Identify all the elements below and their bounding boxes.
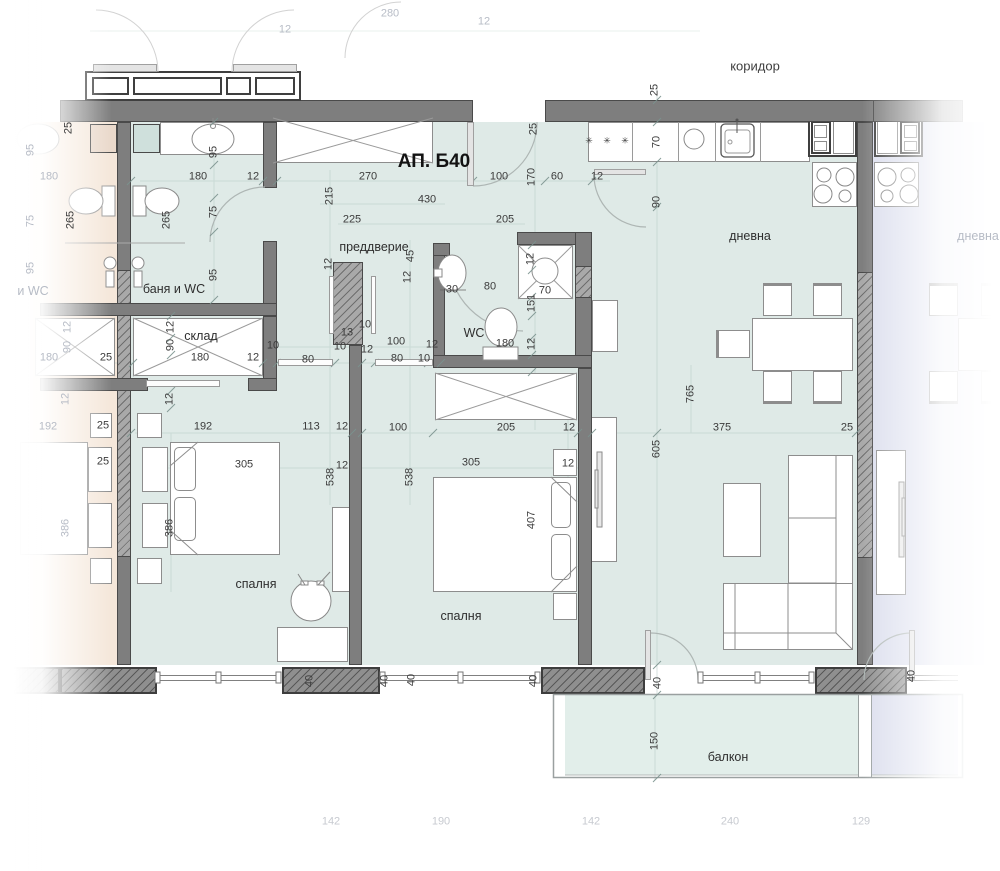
dimension-label: 13 [341, 328, 353, 339]
living-door-arc [594, 175, 646, 227]
dimension-label: 100 [490, 172, 508, 183]
shower-fixture-icon [104, 257, 144, 287]
neighbor-tv-icon [899, 482, 905, 557]
corridor-door-arc [96, 10, 158, 72]
room-label: склад [184, 330, 217, 343]
dimension-label: 192 [39, 422, 57, 433]
dimension-label: 40 [407, 674, 418, 686]
corridor-door-arc [232, 10, 294, 72]
dimension-label: 180 [191, 353, 209, 364]
room-label: дневна [729, 230, 771, 243]
dimension-label: 12 [426, 340, 438, 351]
dimension-label: 12 [165, 393, 176, 405]
dimension-label: 10 [418, 354, 430, 365]
stove-burners-icon [814, 168, 854, 203]
dimension-label: 90 [652, 196, 663, 208]
dimension-label: 265 [162, 211, 173, 229]
dimension-label: 270 [359, 172, 377, 183]
dimension-label: 205 [496, 215, 514, 226]
neighbor-stove-burners-icon [878, 168, 918, 203]
balcony-door-leaf [645, 630, 651, 680]
dimension-label: 25 [650, 84, 661, 96]
room-label: коридор [730, 60, 780, 73]
dimension-label: 12 [279, 25, 291, 36]
tv-icon [595, 452, 602, 527]
dimension-label: 70 [539, 286, 551, 297]
balcony-door-arc [651, 633, 698, 680]
dimension-label: 90 [63, 341, 74, 353]
room-label: спалня [441, 610, 482, 623]
dimension-label: 142 [582, 817, 600, 828]
dimension-label: 12 [61, 393, 72, 405]
plan-linework [0, 0, 1000, 871]
dimension-label: 95 [209, 146, 220, 158]
room-label: дневна [957, 230, 999, 243]
appliance-symbol: ✳ ✳ ✳ [585, 137, 633, 146]
floor-plan-canvas: АП. Б40 коридорпреддвериебаня и WCскладW… [0, 0, 1000, 871]
plant-icon [291, 572, 331, 621]
dimension-label: 40 [653, 677, 664, 689]
dimension-label: 113 [302, 422, 320, 433]
dimension-label: 80 [391, 354, 403, 365]
dimension-label: 386 [61, 519, 72, 537]
dimension-label: 95 [209, 269, 220, 281]
dimension-label: 190 [432, 817, 450, 828]
dimension-label: 150 [650, 732, 661, 750]
dimension-label: 142 [322, 817, 340, 828]
dimension-label: 305 [235, 460, 253, 471]
pocket-door-panel [371, 276, 376, 334]
dimension-label: 25 [64, 122, 75, 134]
dimension-label: 12 [63, 321, 74, 333]
neighbor-balcony-door-arc [864, 633, 911, 680]
dimension-label: 225 [343, 215, 361, 226]
dimension-label: 12 [247, 353, 259, 364]
dimension-label: 407 [527, 511, 538, 529]
balcony-railing [554, 695, 963, 778]
dimension-label: 538 [405, 468, 416, 486]
dimension-label: 25 [529, 123, 540, 135]
dimension-label: 12 [591, 172, 603, 183]
dimension-label: 70 [652, 136, 663, 148]
dimension-label: 192 [194, 422, 212, 433]
dimension-label: 80 [484, 282, 496, 293]
dimension-label: 75 [209, 206, 220, 218]
room-label: и WC [17, 285, 48, 298]
dimension-label: 40 [380, 675, 391, 687]
dimension-label: 12 [527, 338, 538, 350]
dimension-label: 12 [403, 271, 414, 283]
sofa-lines [724, 456, 852, 649]
dimension-label: 538 [326, 468, 337, 486]
dimension-label: 205 [497, 423, 515, 434]
neighbor-sink-icon [17, 124, 59, 154]
dimension-label: 80 [302, 355, 314, 366]
room-label: WC [464, 327, 485, 340]
dimension-label: 25 [841, 423, 853, 434]
dimension-ticks [127, 96, 860, 782]
dimension-label: 12 [336, 422, 348, 433]
dimension-label: 40 [529, 675, 540, 687]
wc-toilet-icon [483, 308, 518, 360]
dimension-label: 12 [526, 253, 537, 265]
apartment-title: АП. Б40 [398, 151, 470, 173]
dimension-label: 12 [247, 172, 259, 183]
dimension-label: 765 [686, 385, 697, 403]
dimension-label: 45 [406, 250, 417, 262]
dimension-label: 100 [387, 337, 405, 348]
dimension-label: 25 [97, 457, 109, 468]
dimension-label: 605 [652, 440, 663, 458]
dimension-label: 100 [389, 423, 407, 434]
dimension-label: 280 [381, 9, 399, 20]
dimension-label: 25 [100, 353, 112, 364]
room-label: балкон [708, 751, 749, 764]
dimension-label: 75 [26, 215, 37, 227]
bed-fold-marks [170, 442, 577, 592]
dimension-label: 180 [40, 172, 58, 183]
kitchen-sink-icon [721, 119, 754, 158]
dimension-label: 40 [305, 675, 316, 687]
room-label: баня и WC [143, 283, 205, 296]
dimension-label: 95 [26, 144, 37, 156]
dimension-label: 30 [446, 285, 458, 296]
dimension-label: 180 [40, 353, 58, 364]
dimension-label: 12 [361, 345, 373, 356]
dimension-label: 10 [359, 320, 371, 331]
dimension-label: 151 [527, 294, 538, 312]
kitchen-hob-icon [684, 129, 704, 149]
storage-sliding-door [146, 380, 220, 387]
dimension-label: 10 [334, 342, 346, 353]
dimension-label: 375 [713, 423, 731, 434]
dimension-label: 180 [496, 339, 514, 350]
dimension-label: 12 [166, 321, 177, 333]
dimension-label: 129 [852, 817, 870, 828]
dimension-label: 90 [166, 339, 177, 351]
dimension-label: 240 [721, 817, 739, 828]
dimension-label: 215 [325, 187, 336, 205]
dimension-label: 305 [462, 458, 480, 469]
dimension-label: 25 [97, 421, 109, 432]
room-label: преддверие [339, 241, 408, 254]
dimension-label: 40 [907, 670, 918, 682]
dimension-label: 265 [66, 211, 77, 229]
dimension-label: 386 [165, 519, 176, 537]
room-label: спалня [236, 578, 277, 591]
dimension-label: 430 [418, 195, 436, 206]
dimension-label: 180 [189, 172, 207, 183]
pocket-door-panel [329, 276, 334, 334]
dimension-label: 12 [336, 461, 348, 472]
dimension-label: 60 [551, 172, 563, 183]
dimension-label: 12 [562, 459, 574, 470]
dimension-label: 95 [26, 262, 37, 274]
dimension-label: 10 [267, 341, 279, 352]
dimension-label: 12 [324, 258, 335, 270]
dimension-label: 12 [563, 423, 575, 434]
dimension-label: 12 [478, 17, 490, 28]
dimension-label: 170 [527, 168, 538, 186]
